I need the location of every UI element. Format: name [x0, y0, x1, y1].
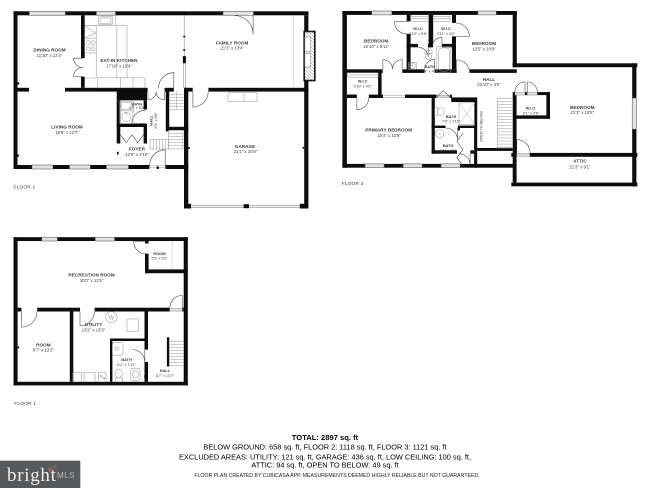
svg-text:7'4" x 4'6": 7'4" x 4'6" — [422, 69, 439, 73]
svg-text:HALL: HALL — [160, 368, 171, 373]
svg-text:DINING ROOM: DINING ROOM — [33, 48, 65, 53]
svg-text:7'6" x 3'10": 7'6" x 3'10" — [442, 120, 461, 124]
svg-text:W.I.C.: W.I.C. — [526, 106, 537, 111]
svg-text:4'7" x 6'8": 4'7" x 6'8" — [129, 106, 146, 110]
svg-text:MLS: MLS — [57, 471, 75, 480]
svg-text:GARAGE: GARAGE — [235, 144, 255, 149]
svg-text:3'11" x 5'6": 3'11" x 5'6" — [437, 32, 456, 36]
svg-text:ATTIC: ATTIC — [573, 159, 587, 164]
svg-text:W.I.C: W.I.C — [441, 26, 451, 31]
svg-text:FLOOR 3: FLOOR 3 — [342, 181, 364, 186]
svg-text:10'10" x 9'11": 10'10" x 9'11" — [363, 44, 389, 49]
svg-text:FLOOR 2: FLOOR 2 — [14, 185, 36, 190]
svg-text:BATH: BATH — [446, 114, 457, 119]
svg-text:FOYER: FOYER — [129, 146, 146, 151]
svg-text:3'10" x 5'6": 3'10" x 5'6" — [409, 32, 428, 36]
svg-text:ROOM: ROOM — [153, 251, 165, 256]
svg-text:BELOW GROUND: 658 sq. ft, FLOO: BELOW GROUND: 658 sq. ft, FLOOR 2: 1118 … — [203, 443, 446, 452]
svg-text:5'10" x 4'3": 5'10" x 4'3" — [354, 85, 373, 89]
svg-text:FLOOR PLAN CREATED BY CUBICASA: FLOOR PLAN CREATED BY CUBICASA APP. MEAS… — [194, 473, 479, 479]
svg-text:HALL: HALL — [149, 115, 154, 126]
svg-text:17'10" x 13'4": 17'10" x 13'4" — [106, 63, 132, 68]
svg-text:6'1" x 2'6": 6'1" x 2'6" — [523, 111, 540, 115]
svg-text:LIVING ROOM: LIVING ROOM — [51, 125, 83, 130]
svg-text:23'10" x 4'5": 23'10" x 4'5" — [477, 82, 501, 87]
svg-text:6'2" x 7'10": 6'2" x 7'10" — [117, 363, 136, 367]
svg-text:UTILITY: UTILITY — [85, 322, 103, 327]
svg-text:FLOOR 1: FLOOR 1 — [14, 401, 36, 406]
svg-text:6'7" x 13'7": 6'7" x 13'7" — [156, 374, 175, 378]
svg-text:9'7" x 12'3": 9'7" x 12'3" — [33, 348, 55, 353]
svg-text:5'5" x 7'0": 5'5" x 7'0" — [440, 149, 457, 153]
svg-text:13'2" x 13'3": 13'2" x 13'3" — [82, 327, 106, 332]
svg-text:BATH: BATH — [121, 357, 132, 362]
svg-text:21'1" x 20'8": 21'1" x 20'8" — [234, 149, 258, 154]
svg-text:21'3" x 9'1": 21'3" x 9'1" — [569, 164, 591, 169]
svg-text:30'0" x 12'5": 30'0" x 12'5" — [80, 278, 104, 283]
svg-text:11'10" x 12'4": 11'10" x 12'4" — [37, 53, 63, 58]
svg-text:6'9" x 8'8": 6'9" x 8'8" — [154, 112, 158, 129]
svg-text:OPEN TO BELOW: OPEN TO BELOW — [480, 111, 484, 142]
svg-text:bright: bright — [7, 465, 57, 486]
svg-text:RECREATION ROOM: RECREATION ROOM — [68, 273, 114, 278]
svg-text:BATH: BATH — [424, 64, 435, 69]
svg-text:21'3" x 13'4": 21'3" x 13'4" — [220, 45, 244, 50]
svg-text:BATH: BATH — [443, 143, 454, 148]
svg-text:EAT-IN KITCHEN: EAT-IN KITCHEN — [100, 58, 138, 63]
svg-text:PRIMARY BEDROOM: PRIMARY BEDROOM — [365, 128, 412, 133]
svg-text:12'0" x 4'10": 12'0" x 4'10" — [125, 152, 149, 157]
svg-text:W.I.C: W.I.C — [413, 26, 423, 31]
svg-text:BEDROOM: BEDROOM — [364, 39, 388, 44]
svg-text:ROOM: ROOM — [36, 342, 51, 347]
svg-text:6'5" x 5'9": 6'5" x 5'9" — [151, 257, 168, 261]
svg-text:W.I.C: W.I.C — [358, 79, 368, 84]
svg-text:21'3" x 18'5": 21'3" x 18'5" — [571, 110, 595, 115]
svg-text:10'5" x 10'9": 10'5" x 10'9" — [472, 46, 496, 51]
svg-text:ATTIC: 94 sq. ft, OPEN TO BELO: ATTIC: 94 sq. ft, OPEN TO BELOW: 49 sq. … — [251, 461, 398, 470]
svg-text:TOTAL: 2897 sq. ft: TOTAL: 2897 sq. ft — [292, 433, 359, 442]
svg-text:BEDROOM: BEDROOM — [472, 41, 496, 46]
svg-text:15'4" x 12'5": 15'4" x 12'5" — [377, 133, 401, 138]
svg-text:18'9" x 12'7": 18'9" x 12'7" — [55, 130, 79, 135]
